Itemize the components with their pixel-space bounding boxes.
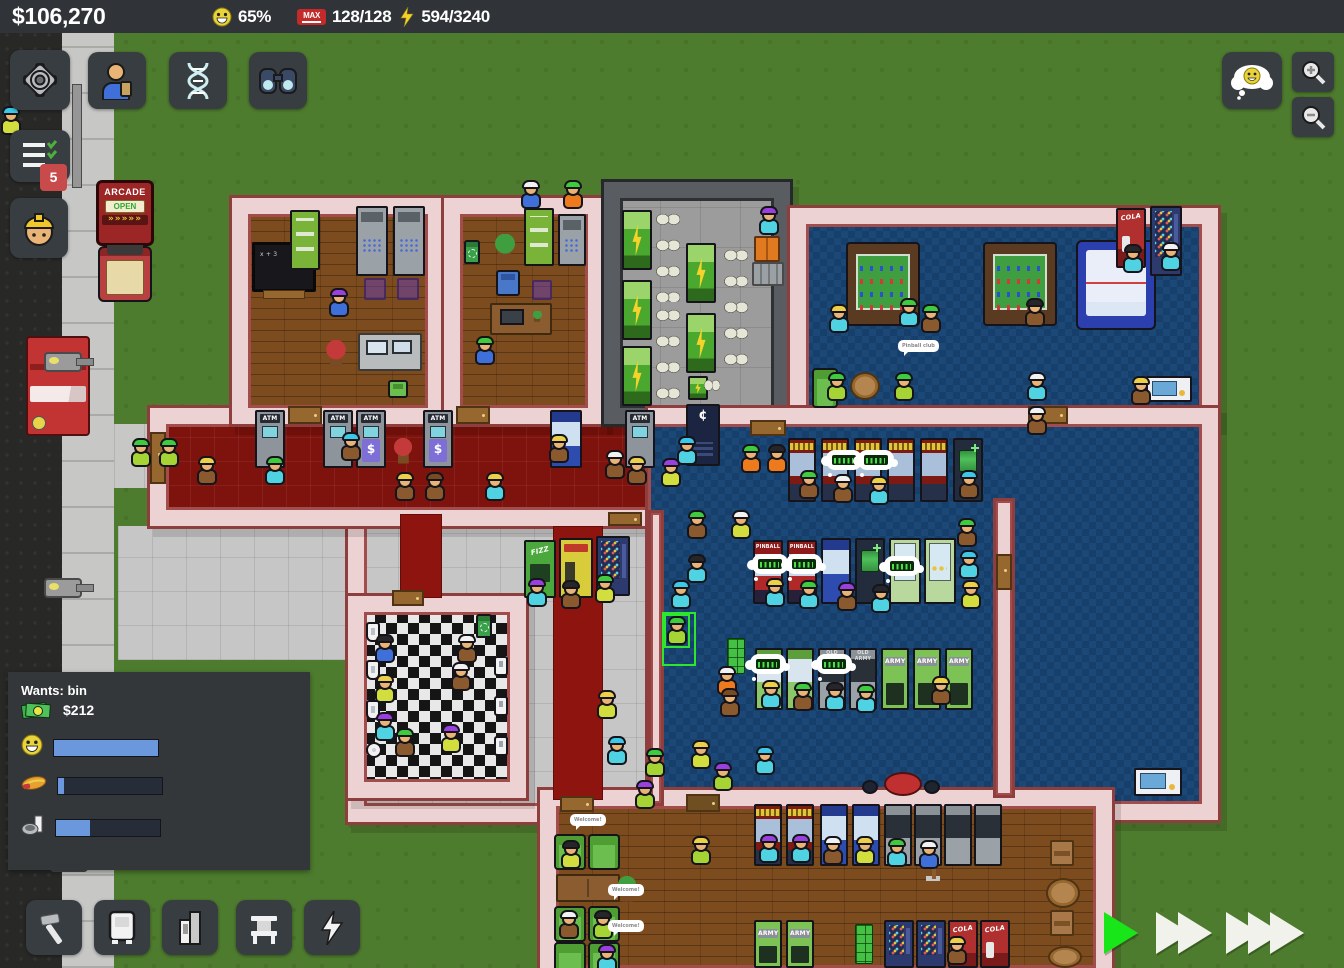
door [750,420,786,436]
want-row-food [21,774,163,797]
person[interactable] [130,438,152,468]
tableR-machine[interactable] [1046,878,1080,908]
person[interactable] [456,634,478,664]
game-viewport: x + 3COLAATMATMATM$ATM$ATM¢FIZZPINBALLPI… [0,0,1344,968]
vsnack-machine[interactable] [916,920,946,968]
sink-machine[interactable] [494,696,508,716]
wall-segment [993,498,1015,798]
deskg-machine[interactable] [358,333,422,371]
arcade-machine[interactable] [887,438,915,502]
door [996,554,1012,590]
chairw-machine[interactable] [1050,840,1074,866]
money-display: $106,270 [12,3,212,30]
person[interactable] [594,574,616,604]
person[interactable] [596,944,618,968]
bin-machine[interactable] [476,614,492,638]
person[interactable] [560,580,582,610]
person[interactable] [676,436,698,466]
speech-bubble: Welcome! [608,920,644,932]
person[interactable] [1026,372,1048,402]
arcade-open-sign: ARCADE OPEN »»»»» [96,180,154,246]
thought-bubble [884,556,920,576]
army-machine[interactable]: ARMY [786,920,814,968]
person[interactable] [474,336,496,366]
person[interactable] [562,180,584,210]
person[interactable] [960,580,982,610]
staff-person-icon [99,62,135,100]
person[interactable] [1130,376,1152,406]
door [560,796,594,812]
counter-machine[interactable] [1146,376,1192,402]
zoom-out-button[interactable] [1292,97,1334,137]
cells-machine[interactable] [704,376,720,398]
person[interactable] [328,288,350,318]
bin-machine[interactable] [464,240,480,264]
locker-machine[interactable] [356,206,388,276]
person[interactable] [484,472,506,502]
person[interactable] [790,834,812,864]
person[interactable] [754,746,776,776]
zoom-in-button[interactable] [1292,52,1334,92]
person[interactable] [394,728,416,758]
person[interactable] [712,762,734,792]
atm-machine[interactable]: ATM$ [423,410,453,468]
room-patio [118,526,350,660]
claw-machine[interactable] [924,538,956,604]
person[interactable] [596,690,618,720]
door [686,794,720,812]
vending-icon [176,910,204,946]
gear-icon [22,62,58,98]
person[interactable] [886,838,908,868]
cells-machine[interactable] [656,306,680,402]
stool-machine[interactable] [924,780,940,794]
door [456,406,490,424]
sink-machine[interactable] [494,736,508,756]
sign-open: OPEN [105,200,145,213]
person[interactable] [798,470,820,500]
playback-controls [1104,912,1304,954]
speech-bubble: Welcome! [608,884,644,896]
counter-machine[interactable] [1134,768,1182,796]
zoom-in-icon [1300,59,1326,85]
street-lamp [44,578,82,598]
max-badge: MAX [297,9,326,25]
person[interactable] [956,518,978,548]
person[interactable] [832,474,854,504]
person[interactable] [604,450,626,480]
thought-cloud-icon [1230,61,1274,101]
locker-machine[interactable] [393,206,425,276]
thought-bubble [786,554,822,574]
person[interactable] [374,712,396,742]
happiness-smiley-icon [212,7,232,27]
person[interactable] [1026,406,1048,436]
graym-machine[interactable] [974,804,1002,866]
person[interactable] [690,740,712,770]
person[interactable] [1024,298,1046,328]
person[interactable] [826,372,848,402]
arcade-machine[interactable] [920,438,948,502]
army-machine[interactable]: ARMY [754,920,782,968]
person[interactable] [158,438,180,468]
customer-thoughts-button[interactable] [1222,52,1282,109]
battery-machine[interactable] [622,210,652,270]
chairg-machine[interactable] [388,380,408,398]
deskw-machine[interactable] [490,303,552,335]
builder-helmet-icon [19,208,59,248]
want-bar [53,739,159,757]
cells-machine[interactable] [656,210,680,302]
person[interactable] [792,682,814,712]
staff-builder-button[interactable] [10,198,68,258]
person[interactable] [822,836,844,866]
carpet [400,514,442,598]
mat-machine[interactable] [532,280,552,300]
dna-icon [183,61,213,101]
thought-bubble [858,450,894,470]
person[interactable] [560,840,582,870]
person[interactable] [930,676,952,706]
want-bar [55,819,161,837]
person[interactable] [758,834,780,864]
person[interactable] [958,550,980,580]
person[interactable] [824,682,846,712]
person[interactable] [196,456,218,486]
person[interactable] [760,680,782,710]
tableRed-machine[interactable] [884,772,922,796]
money-icon [21,698,53,722]
furniture-button[interactable] [236,900,292,955]
chairw-machine[interactable] [1050,910,1074,936]
want-row-happiness [21,734,159,761]
person[interactable] [758,206,780,236]
person[interactable] [868,476,890,506]
person[interactable] [870,584,892,614]
person[interactable] [558,910,580,940]
settings-button[interactable] [10,50,70,110]
door [288,406,322,424]
want-row-toilet [21,814,161,841]
research-button[interactable] [169,52,227,109]
battery-machine[interactable] [622,280,652,340]
tableR-machine[interactable] [850,372,880,400]
person[interactable] [766,444,788,474]
battery-machine[interactable] [686,313,716,373]
wants-money-value: $212 [63,703,94,717]
binoculars-icon [258,65,298,97]
plantr-machine[interactable] [326,340,346,370]
person[interactable] [340,432,362,462]
person[interactable] [855,684,877,714]
person[interactable] [670,580,692,610]
cells-machine[interactable] [724,246,748,372]
toilet-icon [21,814,45,841]
person[interactable] [719,688,741,718]
speech-bubble: Welcome! [570,814,606,826]
wants-money-row: $212 [21,698,94,722]
locker-machine[interactable] [558,214,586,266]
speed-3x-button[interactable] [1226,912,1304,954]
play-button[interactable] [1104,912,1138,954]
person[interactable] [1160,242,1182,272]
build-button[interactable] [26,900,82,955]
utilities-button[interactable] [304,900,360,955]
hammer-icon [37,911,71,945]
power-stat: 594/3240 [399,7,490,27]
door [392,590,424,606]
army-machine[interactable]: ARMY [881,648,909,710]
person[interactable] [606,736,628,766]
person[interactable] [394,472,416,502]
sofag-machine[interactable] [554,942,586,968]
speech-bubble: Pinball club [898,340,939,352]
vcola-machine[interactable]: COLA [980,920,1010,968]
person[interactable] [854,836,876,866]
person[interactable] [893,372,915,402]
sign-chevrons: »»»»» [102,215,148,225]
wants-title: Wants: bin [21,684,310,697]
person[interactable] [424,472,446,502]
sofag-machine[interactable] [588,834,620,870]
vsnack-machine[interactable] [884,920,914,968]
chairb-machine[interactable] [496,270,520,296]
person[interactable] [526,578,548,608]
person[interactable] [626,456,648,486]
person[interactable] [798,580,820,610]
happiness-icon [21,734,43,761]
pallet-machine[interactable] [752,262,784,286]
lightning-icon [399,7,415,27]
person[interactable] [958,470,980,500]
graym-machine[interactable] [944,804,972,866]
furniture-icon [247,912,281,944]
mat-machine[interactable] [364,278,386,300]
plantr-machine[interactable] [394,438,412,466]
cabinet-machine[interactable] [524,208,554,266]
happiness-stat: 65% [212,7,271,27]
person[interactable] [836,582,858,612]
person[interactable] [374,674,396,704]
sink-machine[interactable] [494,656,508,676]
arcade-cabinet-icon [106,910,138,946]
capacity-value: 128/128 [332,7,391,27]
plant-machine[interactable] [494,234,516,264]
toilet-machine[interactable] [366,742,382,758]
person[interactable] [686,554,708,584]
utilities-lightning-icon [319,911,345,945]
marketing-button[interactable] [249,52,307,109]
person[interactable] [264,456,286,486]
person[interactable] [730,510,752,540]
person[interactable] [690,836,712,866]
person[interactable] [1122,244,1144,274]
arcade-machines-button[interactable] [94,900,150,955]
person[interactable] [440,724,462,754]
person[interactable] [918,840,940,870]
door [608,512,642,526]
top-status-bar: $106,270 65% MAX 128/128 594/3240 [0,0,1344,33]
stool-machine[interactable] [862,780,878,794]
food-icon [21,774,47,797]
tetris-machine[interactable] [855,924,873,964]
person[interactable] [898,298,920,328]
mat-machine[interactable] [397,278,419,300]
sign-title: ARCADE [99,188,151,197]
happiness-value: 65% [238,7,271,27]
person[interactable] [666,616,688,646]
person[interactable] [548,434,570,464]
lamp-pole [72,84,82,188]
room-corridor [150,408,664,526]
person[interactable] [450,662,472,692]
person[interactable] [740,444,762,474]
vending-machines-button[interactable] [162,900,218,955]
person[interactable] [644,748,666,778]
person[interactable] [374,634,396,664]
battery-machine[interactable] [686,243,716,303]
objectives-badge: 5 [40,164,67,191]
wants-panel: Wants: bin $212 [8,672,310,870]
speed-2x-button[interactable] [1156,912,1212,954]
want-bar [57,777,163,795]
zoom-out-icon [1300,104,1326,130]
person[interactable] [686,510,708,540]
hire-staff-button[interactable] [88,52,146,109]
cabinet-machine[interactable] [290,210,320,270]
person[interactable] [634,780,656,810]
battery-machine[interactable] [622,346,652,406]
tableR-machine[interactable] [1048,946,1082,968]
person[interactable] [946,936,968,966]
person[interactable] [920,304,942,334]
street-lamp [44,352,82,372]
person[interactable] [828,304,850,334]
thought-bubble [816,654,852,674]
person[interactable] [764,578,786,608]
person[interactable] [520,180,542,210]
power-value: 594/3240 [421,7,490,27]
delivery-truck [26,336,90,436]
thought-bubble [750,654,786,674]
capacity-stat: MAX 128/128 [297,7,391,27]
crate-machine[interactable] [754,236,780,262]
